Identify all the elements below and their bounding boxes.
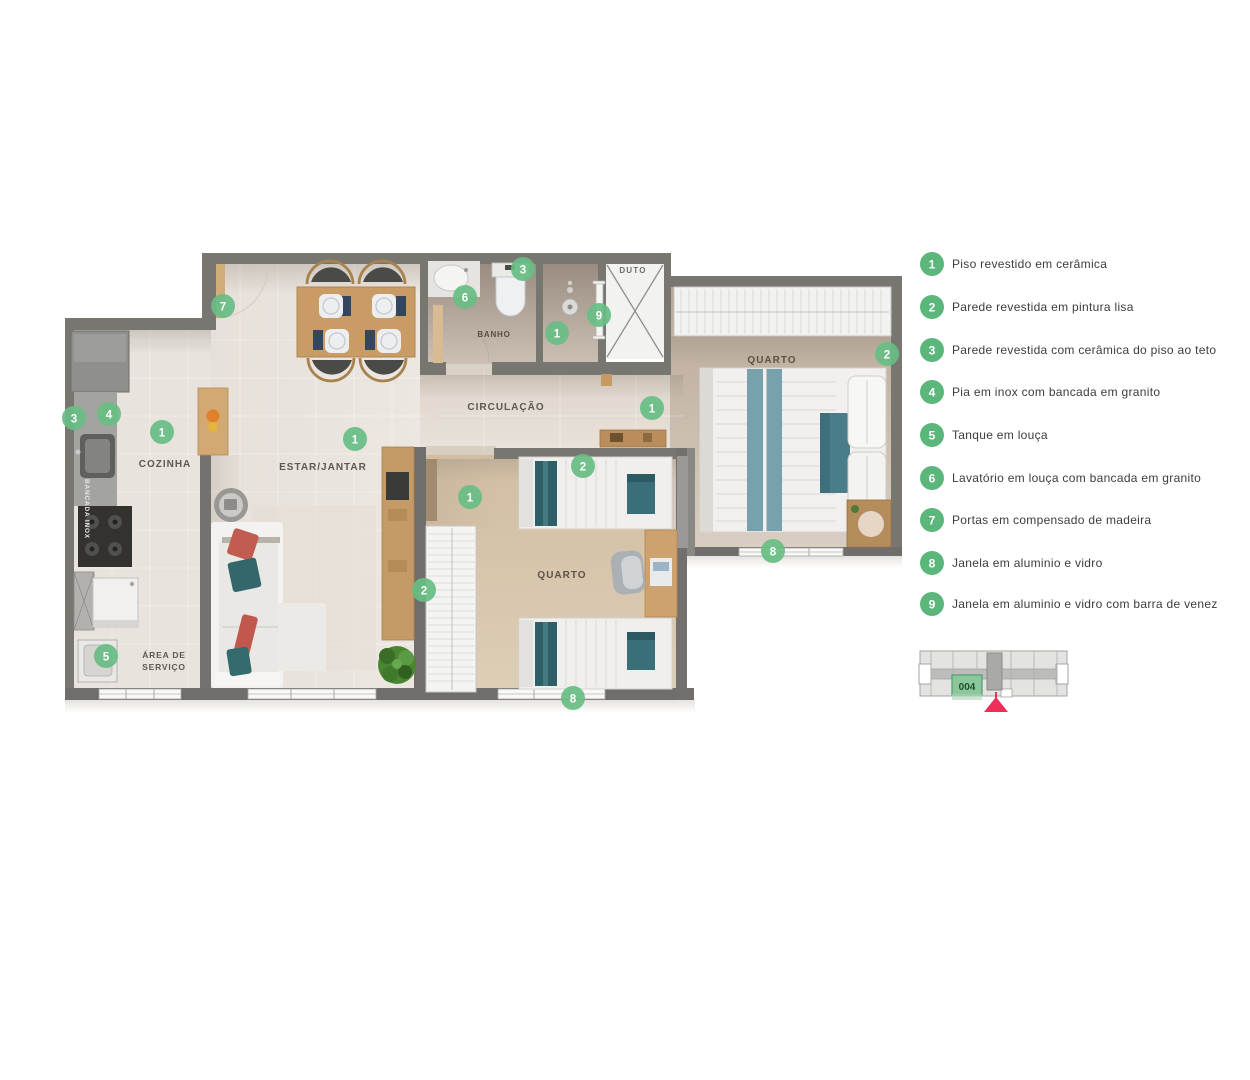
svg-text:8: 8	[770, 547, 777, 559]
svg-text:2: 2	[580, 462, 586, 474]
svg-text:004: 004	[959, 682, 976, 693]
svg-text:1: 1	[649, 404, 656, 416]
svg-text:Portas em compensado de madeir: Portas em compensado de madeira	[952, 513, 1151, 527]
svg-text:1: 1	[352, 435, 359, 447]
svg-text:1: 1	[554, 329, 561, 341]
svg-text:DUTO: DUTO	[619, 266, 646, 275]
svg-text:1: 1	[467, 493, 474, 505]
svg-text:4: 4	[106, 410, 113, 422]
svg-text:3: 3	[520, 265, 526, 277]
svg-text:7: 7	[220, 302, 226, 314]
svg-text:SERVIÇO: SERVIÇO	[142, 662, 186, 672]
svg-text:2: 2	[884, 350, 890, 362]
svg-text:8: 8	[929, 557, 936, 571]
svg-text:6: 6	[462, 293, 468, 305]
svg-text:9: 9	[929, 598, 936, 612]
svg-text:Parede revestida com cerâmica: Parede revestida com cerâmica do piso ao…	[952, 343, 1216, 357]
svg-text:QUARTO: QUARTO	[747, 355, 796, 366]
svg-text:2: 2	[421, 586, 427, 598]
svg-text:Tanque em louça: Tanque em louça	[952, 428, 1048, 442]
svg-text:Piso revestido em cerâmica: Piso revestido em cerâmica	[952, 257, 1107, 271]
svg-text:3: 3	[71, 414, 77, 426]
svg-text:5: 5	[929, 429, 936, 443]
svg-text:1: 1	[929, 258, 936, 272]
svg-text:5: 5	[103, 652, 110, 664]
svg-text:6: 6	[929, 472, 936, 486]
svg-text:9: 9	[596, 311, 602, 323]
svg-text:Janela em aluminio e vidro: Janela em aluminio e vidro	[952, 556, 1103, 570]
svg-text:Janela em aluminio e vidro com: Janela em aluminio e vidro com barra de …	[952, 597, 1218, 611]
svg-text:QUARTO: QUARTO	[537, 570, 586, 581]
svg-text:4: 4	[929, 386, 936, 400]
svg-text:2: 2	[929, 301, 936, 315]
svg-text:BANCADA INOX: BANCADA INOX	[83, 479, 90, 539]
svg-text:Pia em inox com bancada em gra: Pia em inox com bancada em granito	[952, 385, 1160, 399]
svg-text:ÁREA DE: ÁREA DE	[142, 650, 186, 660]
svg-text:Lavatório em louça com bancada: Lavatório em louça com bancada em granit…	[952, 471, 1201, 485]
svg-text:COZINHA: COZINHA	[139, 459, 192, 470]
svg-text:CIRCULAÇÃO: CIRCULAÇÃO	[467, 400, 544, 413]
svg-text:Parede revestida em pintura li: Parede revestida em pintura lisa	[952, 300, 1134, 314]
svg-text:3: 3	[929, 344, 936, 358]
svg-text:BANHO: BANHO	[477, 330, 510, 339]
svg-text:ESTAR/JANTAR: ESTAR/JANTAR	[279, 462, 367, 473]
svg-text:7: 7	[929, 514, 936, 528]
svg-text:8: 8	[570, 694, 577, 706]
svg-text:1: 1	[159, 428, 166, 440]
